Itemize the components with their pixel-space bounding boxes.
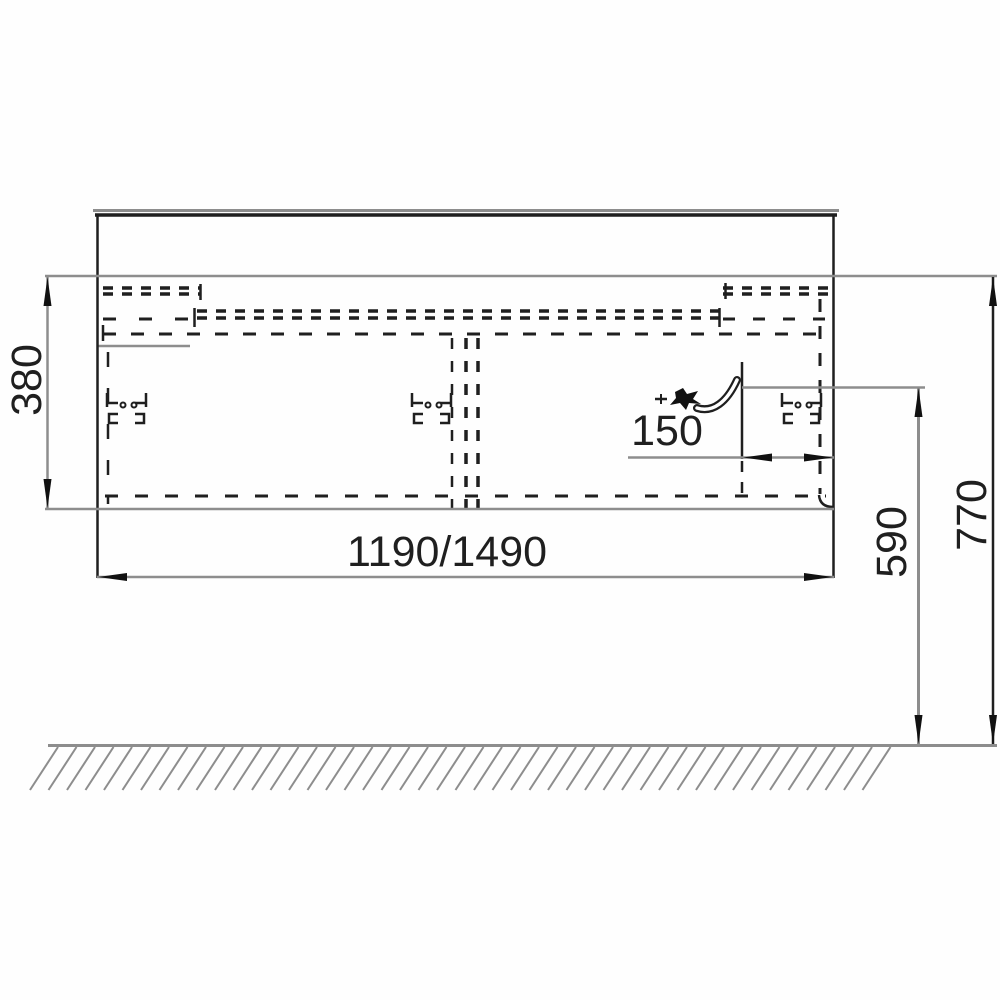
arrow-down-icon bbox=[989, 715, 997, 744]
dimension-drain-offset: 150 bbox=[628, 407, 834, 462]
dim-label-cabinet-width: 1190/1490 bbox=[347, 528, 547, 576]
arrow-down-icon bbox=[44, 479, 52, 508]
dimension-cabinet-width: 1190/1490 bbox=[97, 528, 834, 581]
arrow-up-icon bbox=[989, 277, 997, 306]
arrow-up-icon bbox=[915, 388, 923, 417]
arrow-right-icon bbox=[804, 454, 833, 462]
dim-label-drain-height: 590 bbox=[868, 506, 916, 578]
drawing-svg: 380 1190/1490 150 590 770 bbox=[0, 0, 1000, 1000]
arrow-left-icon bbox=[743, 454, 772, 462]
dimension-cabinet-height: 380 bbox=[3, 277, 52, 508]
floor-hatch bbox=[30, 747, 891, 790]
dimension-worktop-height: 770 bbox=[948, 277, 997, 744]
dim-label-worktop-height: 770 bbox=[948, 479, 996, 551]
drawer-runner-symbol-center bbox=[411, 393, 452, 423]
arrow-down-icon bbox=[915, 715, 923, 744]
technical-drawing: 380 1190/1490 150 590 770 bbox=[0, 0, 1000, 1000]
dim-label-drain-offset: 150 bbox=[631, 407, 703, 455]
drawer-runner-symbol-right bbox=[781, 393, 822, 423]
cabinet-body bbox=[45, 215, 997, 578]
floor bbox=[30, 746, 997, 791]
countertop bbox=[93, 211, 839, 216]
hidden-dashed-lines bbox=[97, 283, 833, 508]
drawer-runner-symbol-left bbox=[106, 393, 147, 423]
arrow-right-icon bbox=[804, 573, 833, 581]
dim-label-cabinet-height: 380 bbox=[3, 344, 51, 416]
arrow-left-icon bbox=[98, 573, 127, 581]
arrow-up-icon bbox=[44, 277, 52, 306]
